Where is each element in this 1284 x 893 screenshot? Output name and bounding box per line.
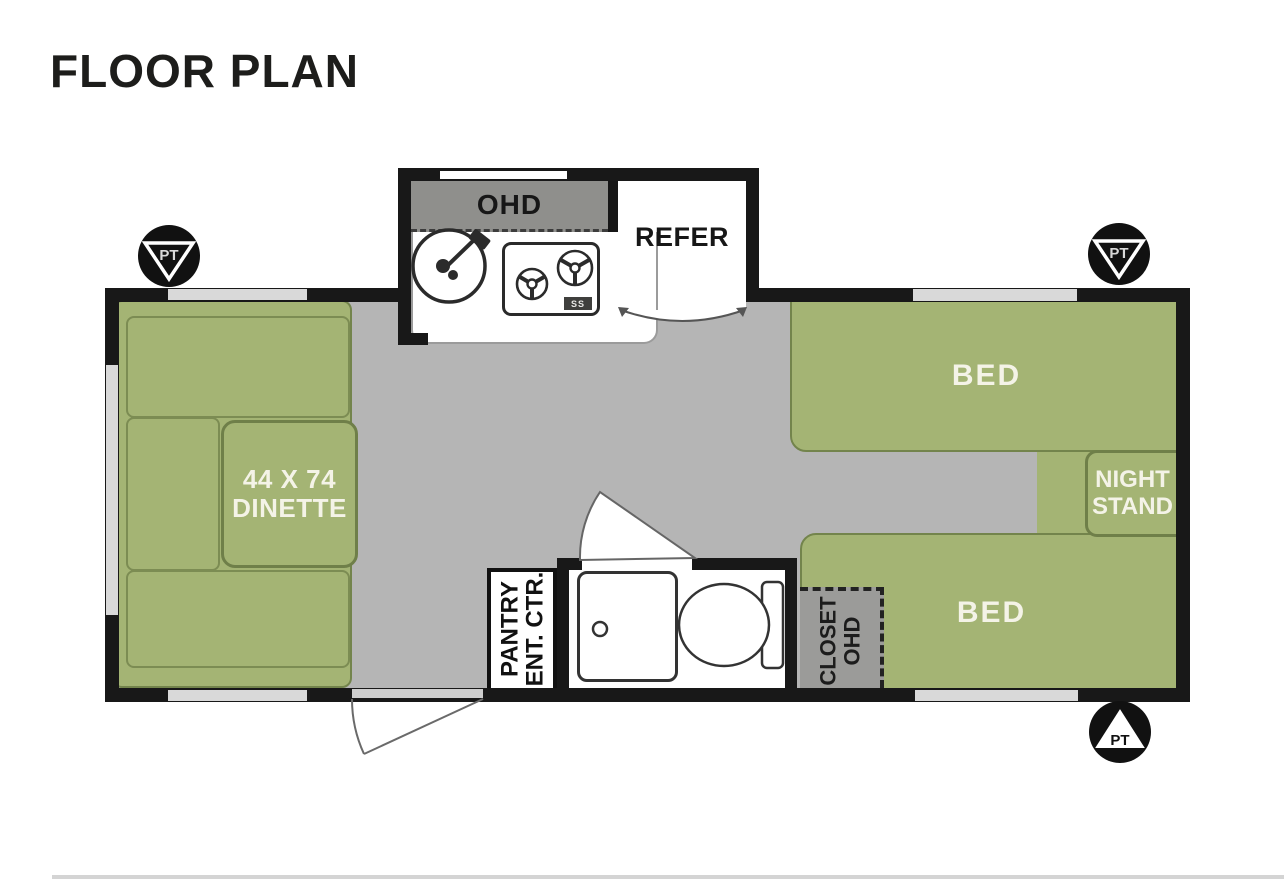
cabinet-fridge-divider-wall [608, 181, 618, 232]
dinette-seat-bottom [126, 570, 350, 668]
window-bottom-left [168, 690, 307, 701]
pantry-label-line2: ENT. CTR. [522, 571, 547, 686]
wall-right [1176, 288, 1190, 702]
pt-marker-icon-bottom-right: PT [1087, 699, 1153, 765]
pantry-ent-center: PANTRY ENT. CTR. [487, 568, 557, 693]
window-top-right [913, 289, 1077, 301]
nightstand-label-line1: NIGHT [1095, 467, 1170, 493]
closet-ohd: CLOSET OHD [800, 587, 884, 688]
page-divider [52, 875, 1284, 879]
fridge-door-arc-icon [615, 305, 750, 335]
dinette-seat-top [126, 316, 350, 418]
bathroom-door-swing-icon [565, 480, 710, 565]
bed-rear-label: BED [957, 596, 1026, 630]
dinette-seat-left [126, 417, 220, 571]
bumpout-wall-left [398, 168, 411, 345]
pt-marker-label-3: PT [1110, 732, 1129, 749]
pt-marker-label-2: PT [1109, 245, 1128, 262]
bumpout-wall-stub [398, 333, 428, 345]
dinette-table: 44 X 74 DINETTE [221, 420, 358, 568]
overhead-cabinet-label: OHD [477, 189, 542, 221]
shower-icon [577, 571, 678, 682]
stove-icon: SS [502, 242, 600, 316]
floor-plan-page: FLOOR PLAN 44 X 74 DINETTE BED BED NIGHT… [0, 0, 1284, 893]
dinette-label: DINETTE [232, 494, 347, 523]
pantry-label-line1: PANTRY [497, 581, 522, 677]
kitchen-window [440, 171, 567, 179]
pt-marker-label-1: PT [159, 247, 178, 264]
closet-label-line1: CLOSET [816, 596, 840, 685]
dinette-size-label: 44 X 74 [243, 465, 336, 494]
bumpout-wall-right [746, 168, 759, 302]
closet-label-line2: OHD [840, 616, 864, 665]
sink-icon [405, 222, 505, 314]
pt-marker-icon-top-left: PT [136, 223, 202, 289]
pt-marker-icon-top-right: PT [1086, 221, 1152, 287]
bed-front: BED [790, 300, 1183, 452]
bed-front-label: BED [952, 359, 1021, 393]
nightstand: NIGHT STAND [1085, 450, 1180, 537]
window-left [106, 365, 118, 615]
window-top-left [168, 289, 307, 300]
nightstand-label-line2: STAND [1092, 494, 1173, 520]
page-title: FLOOR PLAN [50, 44, 359, 98]
fridge-label: REFER [618, 222, 746, 253]
entry-door-swing-icon [340, 688, 500, 768]
window-bottom-right [915, 690, 1078, 701]
pantry-label: PANTRY ENT. CTR. [491, 568, 553, 689]
toilet-icon [672, 575, 790, 680]
stove-badge: SS [564, 297, 592, 310]
closet-label: CLOSET OHD [800, 589, 880, 692]
